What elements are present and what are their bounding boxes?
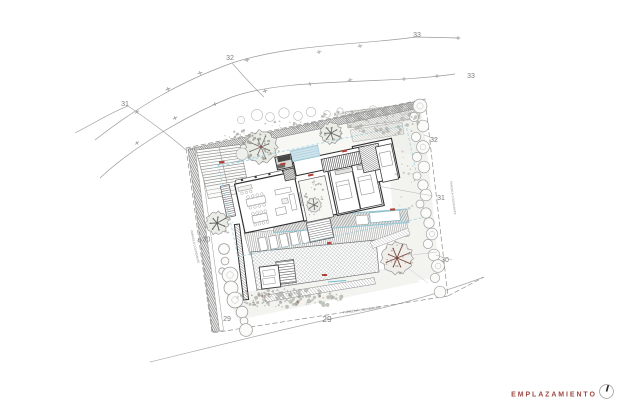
svg-text:29: 29 <box>322 314 332 324</box>
svg-text:32: 32 <box>226 55 234 62</box>
svg-text:29: 29 <box>223 316 231 323</box>
svg-text:32: 32 <box>430 137 438 144</box>
svg-text:33: 33 <box>413 32 421 39</box>
svg-text:30: 30 <box>203 237 211 244</box>
svg-text:31: 31 <box>437 195 445 202</box>
svg-text:EMPLAZAMIENTO: EMPLAZAMIENTO <box>511 392 597 399</box>
svg-text:33: 33 <box>467 73 475 80</box>
svg-text:31: 31 <box>121 101 129 108</box>
